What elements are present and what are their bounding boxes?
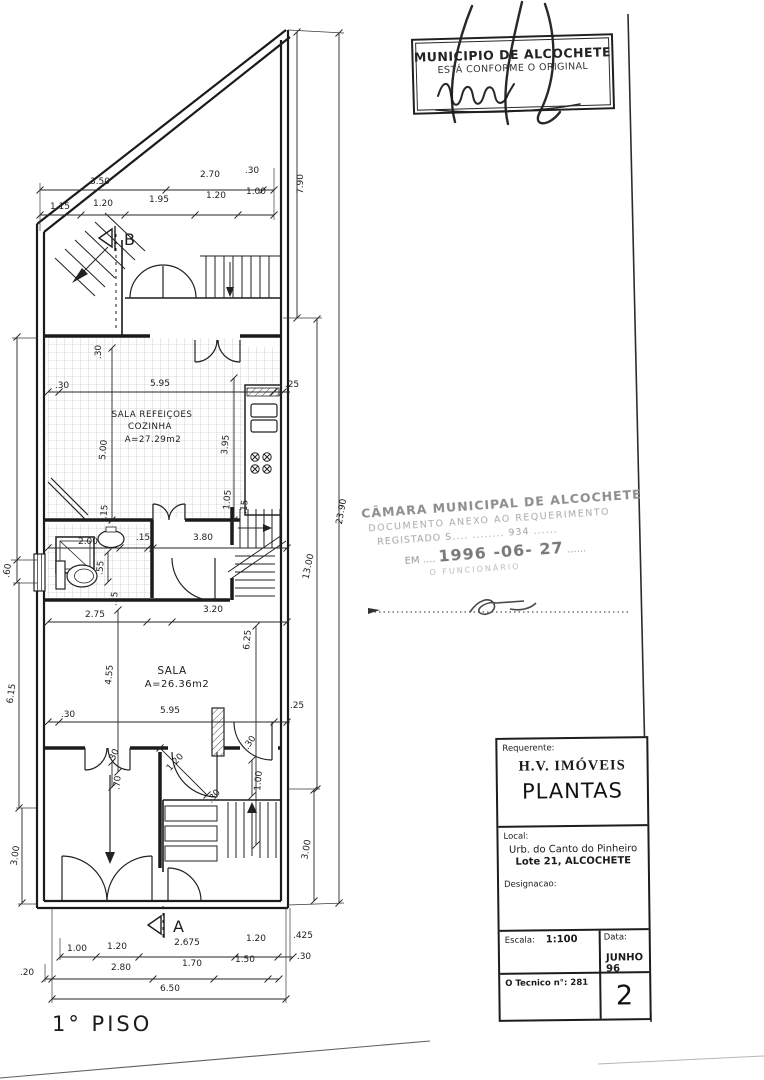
dim-label: 1.95 — [149, 195, 169, 205]
room-kitchen-name: SALA REFEIÇOES — [112, 410, 193, 420]
dim-label: .60 — [2, 563, 14, 579]
dim-label: 4.55 — [104, 664, 116, 685]
dim-label: .30 — [297, 952, 312, 962]
data-label: Data: — [604, 932, 627, 942]
room-kitchen-sub: COZINHA — [128, 422, 172, 432]
section-marker-a: A — [148, 913, 184, 938]
dim-label: 1.70 — [182, 959, 202, 969]
dim-label: 1.50 — [235, 955, 255, 965]
dim-label: 6.50 — [160, 984, 180, 994]
dim-label: 2.675 — [174, 938, 200, 948]
stairs-mid — [228, 509, 286, 596]
dim-label: .30 — [55, 381, 70, 391]
registry-date-prefix: EM .... — [404, 554, 436, 567]
dim-label: 5.95 — [160, 706, 180, 716]
dim-label: .30 — [245, 166, 260, 176]
section-marker-b-label: B — [124, 230, 135, 249]
title-block-requerente-section: Requerente: H.V. IMÓVEIS — [497, 738, 647, 828]
sink-icon — [251, 404, 277, 432]
door-entry-half-round — [130, 265, 196, 298]
stairs-entry-diagonal — [55, 213, 145, 296]
data-value: JUNHO 96 — [600, 952, 649, 975]
section-marker-b: B — [99, 226, 135, 251]
door-hall — [172, 558, 215, 601]
local-label: Local: — [498, 826, 647, 842]
kitchen-counter — [245, 385, 281, 515]
dim-label: 1.20 — [93, 199, 113, 209]
room-sala-name: SALA — [157, 665, 187, 677]
sheet-number: 2 — [599, 973, 650, 1019]
dim-label: 1.20 — [206, 191, 226, 201]
dim-label: 3.95 — [220, 434, 232, 455]
dim-label: 1.20 — [107, 942, 127, 952]
dim-label: 1.00 — [67, 944, 87, 954]
notary-stamp-inner-border — [415, 37, 611, 110]
room-sala-area: A=26.36m2 — [145, 679, 209, 690]
dim-label: 13.00 — [301, 553, 316, 581]
dim-label: .425 — [293, 931, 313, 941]
dim-label: 3.00 — [10, 845, 23, 867]
dim-label: 5.95 — [150, 379, 170, 389]
dim-label: 23.90 — [335, 498, 349, 525]
local-line2: Lote 21, ALCOCHETE — [499, 855, 648, 868]
door-garage-single — [168, 868, 201, 901]
dim-label: .15 — [109, 591, 120, 606]
window-icon — [34, 554, 45, 591]
escala-label: Escala: — [500, 931, 535, 945]
stove-icon — [251, 453, 271, 473]
section-marker-a-label: A — [173, 917, 184, 936]
dim-label: 3.50 — [90, 177, 110, 187]
dim-label: 1.00 — [246, 187, 266, 197]
designacao-label: Designacao: — [499, 874, 648, 890]
dim-label: 1.05 — [222, 489, 234, 510]
local-line1: Urb. do Canto do Pinheiro — [499, 843, 648, 856]
dim-label: 1.20 — [246, 934, 266, 944]
dim-label: .70 — [112, 775, 123, 790]
scanned-floor-plan-page: B A SALA REFEIÇOES COZINHA A=27.29m2 SAL… — [0, 0, 764, 1080]
dim-label: 7.90 — [296, 174, 306, 194]
dim-label: .15 — [99, 504, 110, 519]
dim-label: .30 — [107, 747, 122, 764]
dim-label: 3.00 — [300, 839, 313, 861]
dim-label: .25 — [290, 701, 304, 711]
pen-mark — [368, 608, 380, 614]
registry-date-suffix: ...... — [567, 543, 587, 555]
room-kitchen-area: A=27.29m2 — [125, 435, 182, 445]
title-block-local-section: Local: Urb. do Canto do Pinheiro Lote 21… — [498, 826, 648, 932]
dim-label: .30 — [61, 710, 76, 720]
escala-value: 1:100 — [546, 934, 578, 945]
title-block: Requerente: H.V. IMÓVEIS Local: Urb. do … — [495, 736, 651, 1022]
dim-label: 5.00 — [98, 439, 110, 460]
stairs-bottom — [165, 802, 276, 861]
dim-label: 6.15 — [6, 683, 19, 704]
dim-label: 2.00 — [78, 537, 98, 547]
column-hatched — [212, 708, 224, 756]
dim-label: 2.80 — [111, 963, 131, 973]
dim-label: .30 — [206, 788, 223, 806]
stairs-entry-right — [200, 256, 281, 298]
dim-label: .15 — [239, 499, 250, 514]
dim-label: 6.25 — [242, 629, 254, 650]
dim-label: .30 — [94, 345, 104, 360]
signature-middle — [368, 600, 630, 614]
requerente-value: H.V. IMÓVEIS — [498, 757, 647, 776]
dim-label: 2.75 — [85, 610, 105, 620]
door-garage-double — [62, 856, 152, 901]
dim-label: .25 — [285, 380, 299, 390]
dim-label: 3.80 — [193, 533, 213, 543]
floor-label: 1° PISO — [52, 1012, 152, 1036]
dim-label: .55 — [95, 560, 106, 575]
dim-label: 1.00 — [253, 770, 265, 791]
dim-label: .15 — [136, 533, 150, 543]
notary-stamp: MUNICIPIO DE ALCOCHETE ESTÁ CONFORME O O… — [411, 33, 615, 115]
dim-label: 3.20 — [203, 605, 223, 615]
dim-label: .20 — [20, 968, 35, 978]
dim-label: 2.70 — [200, 170, 220, 180]
tecnico-label: O Tecnico n°: 281 — [505, 978, 588, 989]
requerente-label: Requerente: — [497, 738, 646, 754]
dim-label: 1.15 — [50, 202, 70, 212]
